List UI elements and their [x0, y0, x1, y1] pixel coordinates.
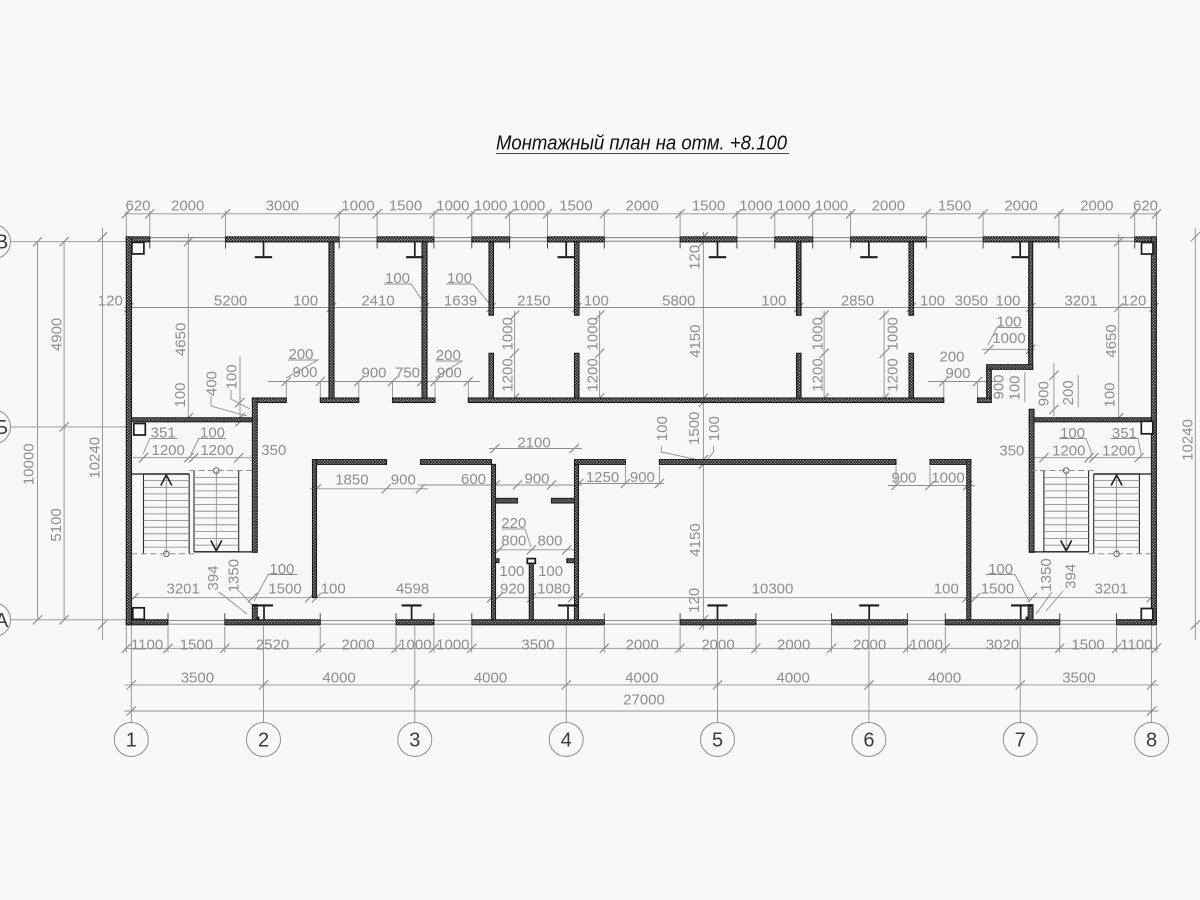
svg-text:1500: 1500: [686, 412, 703, 445]
svg-text:1500: 1500: [180, 636, 213, 653]
svg-text:100: 100: [934, 580, 959, 597]
svg-text:1000: 1000: [884, 317, 901, 350]
svg-text:4: 4: [561, 730, 572, 752]
svg-text:600: 600: [461, 471, 486, 488]
svg-text:2410: 2410: [361, 293, 394, 310]
svg-text:100: 100: [321, 580, 346, 597]
svg-text:1200: 1200: [200, 442, 233, 459]
svg-text:100: 100: [995, 293, 1020, 310]
svg-text:7: 7: [1015, 730, 1026, 752]
svg-text:1000: 1000: [777, 198, 810, 215]
svg-text:3500: 3500: [1062, 670, 1095, 687]
svg-text:120: 120: [98, 293, 123, 310]
svg-text:100: 100: [293, 293, 318, 310]
svg-text:1500: 1500: [389, 198, 422, 215]
svg-text:900: 900: [945, 365, 970, 382]
svg-text:1000: 1000: [341, 198, 374, 215]
svg-text:2000: 2000: [777, 636, 810, 653]
svg-text:1000: 1000: [436, 636, 469, 653]
svg-text:100: 100: [988, 561, 1013, 578]
svg-text:10300: 10300: [752, 580, 794, 597]
svg-text:1200: 1200: [809, 358, 826, 391]
svg-text:3020: 3020: [986, 636, 1019, 653]
svg-text:1250: 1250: [586, 469, 619, 486]
svg-text:5200: 5200: [214, 293, 247, 310]
svg-text:10240: 10240: [86, 437, 103, 479]
svg-text:120: 120: [687, 245, 704, 270]
svg-text:351: 351: [1112, 425, 1137, 442]
svg-text:120: 120: [686, 588, 703, 613]
svg-text:2000: 2000: [171, 198, 204, 215]
svg-text:2100: 2100: [517, 435, 550, 452]
svg-text:100: 100: [499, 563, 524, 580]
svg-text:1200: 1200: [884, 358, 901, 391]
svg-text:Б: Б: [0, 417, 8, 439]
svg-text:1000: 1000: [739, 198, 772, 215]
svg-text:А: А: [0, 610, 9, 632]
svg-text:3050: 3050: [955, 293, 988, 310]
svg-text:1200: 1200: [1102, 443, 1135, 460]
svg-text:750: 750: [395, 364, 420, 381]
svg-text:2000: 2000: [626, 198, 659, 215]
svg-text:100: 100: [706, 416, 723, 441]
svg-text:1080: 1080: [537, 580, 570, 597]
svg-text:3000: 3000: [266, 198, 299, 215]
svg-text:1200: 1200: [584, 358, 601, 391]
svg-text:350: 350: [999, 443, 1024, 460]
svg-text:4000: 4000: [322, 670, 355, 687]
svg-text:400: 400: [204, 371, 221, 396]
svg-text:1500: 1500: [1071, 636, 1104, 653]
svg-text:8: 8: [1146, 730, 1157, 752]
svg-text:1350: 1350: [225, 559, 242, 592]
svg-text:1100: 1100: [1120, 636, 1152, 653]
svg-text:5: 5: [712, 730, 723, 752]
svg-text:4000: 4000: [777, 670, 810, 687]
svg-text:100: 100: [761, 293, 786, 310]
svg-text:1000: 1000: [436, 198, 469, 215]
svg-text:3201: 3201: [1064, 293, 1097, 310]
svg-text:900: 900: [1036, 381, 1053, 406]
svg-text:2: 2: [258, 730, 269, 752]
svg-text:1350: 1350: [1038, 558, 1055, 591]
svg-text:6: 6: [863, 730, 874, 752]
svg-text:1500: 1500: [268, 580, 301, 597]
svg-text:2150: 2150: [517, 293, 550, 310]
svg-text:В: В: [0, 232, 8, 254]
svg-text:Монтажный план на отм. +8.100: Монтажный план на отм. +8.100: [496, 132, 788, 155]
svg-text:1850: 1850: [335, 471, 368, 488]
svg-text:2000: 2000: [701, 636, 734, 653]
svg-text:10240: 10240: [1180, 419, 1197, 461]
svg-text:1000: 1000: [499, 317, 516, 350]
svg-text:1500: 1500: [692, 198, 725, 215]
svg-text:1000: 1000: [584, 317, 601, 350]
svg-text:620: 620: [1133, 198, 1158, 215]
svg-text:1000: 1000: [815, 198, 848, 215]
svg-text:900: 900: [361, 364, 386, 381]
svg-text:4598: 4598: [396, 580, 429, 597]
svg-text:100: 100: [1102, 382, 1119, 407]
svg-text:4000: 4000: [474, 670, 507, 687]
svg-text:1000: 1000: [931, 469, 964, 486]
svg-text:1100: 1100: [131, 636, 163, 653]
svg-text:4900: 4900: [49, 318, 66, 351]
svg-text:4650: 4650: [1103, 324, 1120, 357]
svg-text:3201: 3201: [1095, 580, 1128, 597]
svg-text:100: 100: [920, 293, 945, 310]
svg-text:4000: 4000: [928, 670, 961, 687]
svg-text:5100: 5100: [48, 508, 65, 541]
svg-text:3500: 3500: [521, 636, 554, 653]
svg-text:800: 800: [537, 533, 562, 550]
svg-text:2000: 2000: [872, 198, 905, 215]
svg-text:394: 394: [205, 565, 222, 590]
svg-text:120: 120: [1121, 293, 1146, 310]
svg-text:1500: 1500: [559, 198, 592, 215]
svg-text:5800: 5800: [662, 293, 695, 310]
svg-text:1639: 1639: [444, 293, 477, 310]
svg-text:100: 100: [584, 293, 609, 310]
svg-text:4650: 4650: [172, 323, 189, 356]
svg-text:2850: 2850: [841, 293, 874, 310]
svg-text:100: 100: [654, 416, 671, 441]
svg-text:3201: 3201: [167, 580, 200, 597]
svg-text:200: 200: [1060, 380, 1077, 405]
svg-text:100: 100: [172, 382, 189, 407]
svg-text:100: 100: [1060, 425, 1085, 442]
svg-text:350: 350: [261, 442, 286, 459]
svg-text:920: 920: [500, 580, 525, 597]
svg-text:1000: 1000: [910, 636, 943, 653]
svg-text:1000: 1000: [809, 317, 826, 350]
svg-text:10000: 10000: [21, 443, 38, 485]
svg-text:27000: 27000: [623, 691, 665, 708]
svg-text:100: 100: [269, 561, 294, 578]
svg-text:4150: 4150: [687, 325, 704, 358]
svg-text:620: 620: [125, 198, 150, 215]
svg-text:200: 200: [939, 348, 964, 365]
svg-text:1500: 1500: [938, 198, 971, 215]
svg-text:1000: 1000: [992, 330, 1025, 347]
svg-text:2000: 2000: [1080, 198, 1113, 215]
svg-text:900: 900: [891, 469, 916, 486]
svg-text:2000: 2000: [853, 636, 886, 653]
svg-text:1500: 1500: [981, 580, 1014, 597]
svg-text:900: 900: [391, 471, 416, 488]
svg-text:100: 100: [1007, 375, 1024, 400]
svg-text:100: 100: [538, 563, 563, 580]
svg-text:1200: 1200: [152, 442, 185, 459]
svg-text:394: 394: [1063, 564, 1080, 589]
svg-text:4000: 4000: [625, 670, 658, 687]
svg-text:900: 900: [292, 364, 317, 381]
svg-text:100: 100: [224, 364, 241, 389]
svg-text:100: 100: [996, 314, 1021, 331]
svg-text:900: 900: [991, 374, 1008, 399]
svg-text:3500: 3500: [181, 670, 214, 687]
svg-text:1200: 1200: [1052, 443, 1085, 460]
svg-text:2000: 2000: [341, 636, 374, 653]
svg-text:2000: 2000: [1004, 198, 1037, 215]
svg-text:4150: 4150: [687, 523, 704, 556]
svg-text:2520: 2520: [256, 636, 289, 653]
svg-text:900: 900: [524, 470, 549, 487]
svg-text:800: 800: [501, 533, 526, 550]
svg-text:900: 900: [630, 469, 655, 486]
svg-text:900: 900: [437, 364, 462, 381]
svg-text:1: 1: [126, 730, 137, 752]
svg-text:3: 3: [409, 730, 420, 752]
svg-text:1000: 1000: [512, 198, 545, 215]
svg-text:2000: 2000: [626, 636, 659, 653]
svg-text:1000: 1000: [474, 198, 507, 215]
svg-text:1200: 1200: [499, 358, 516, 391]
